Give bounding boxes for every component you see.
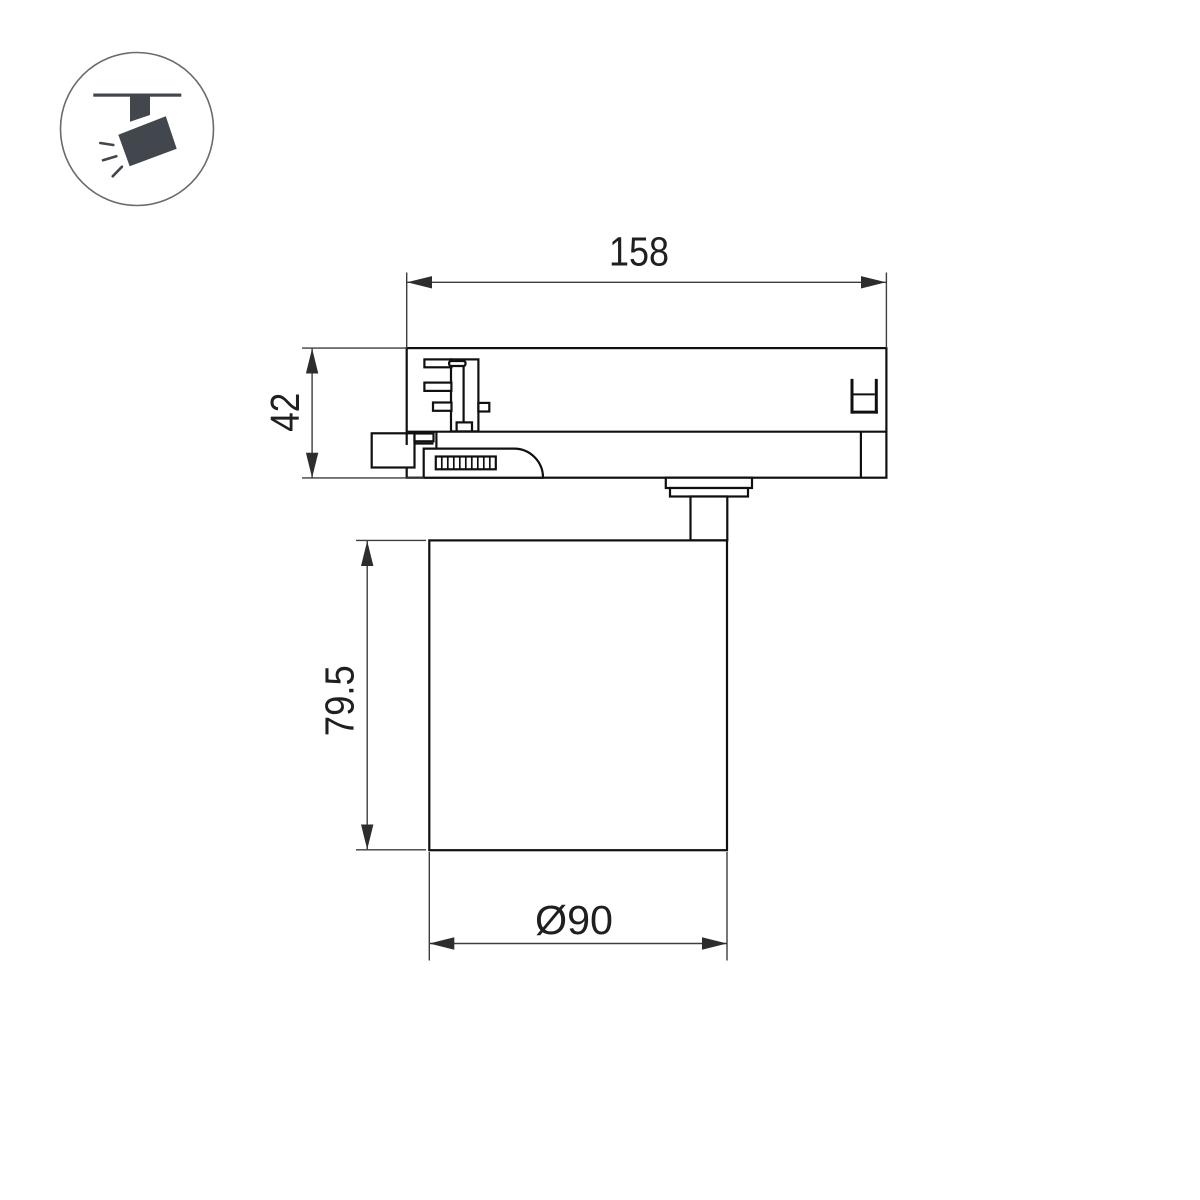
svg-text:Ø90: Ø90 bbox=[535, 897, 613, 943]
svg-text:42: 42 bbox=[262, 393, 308, 432]
svg-text:79.5: 79.5 bbox=[317, 665, 363, 736]
svg-text:158: 158 bbox=[609, 229, 669, 275]
